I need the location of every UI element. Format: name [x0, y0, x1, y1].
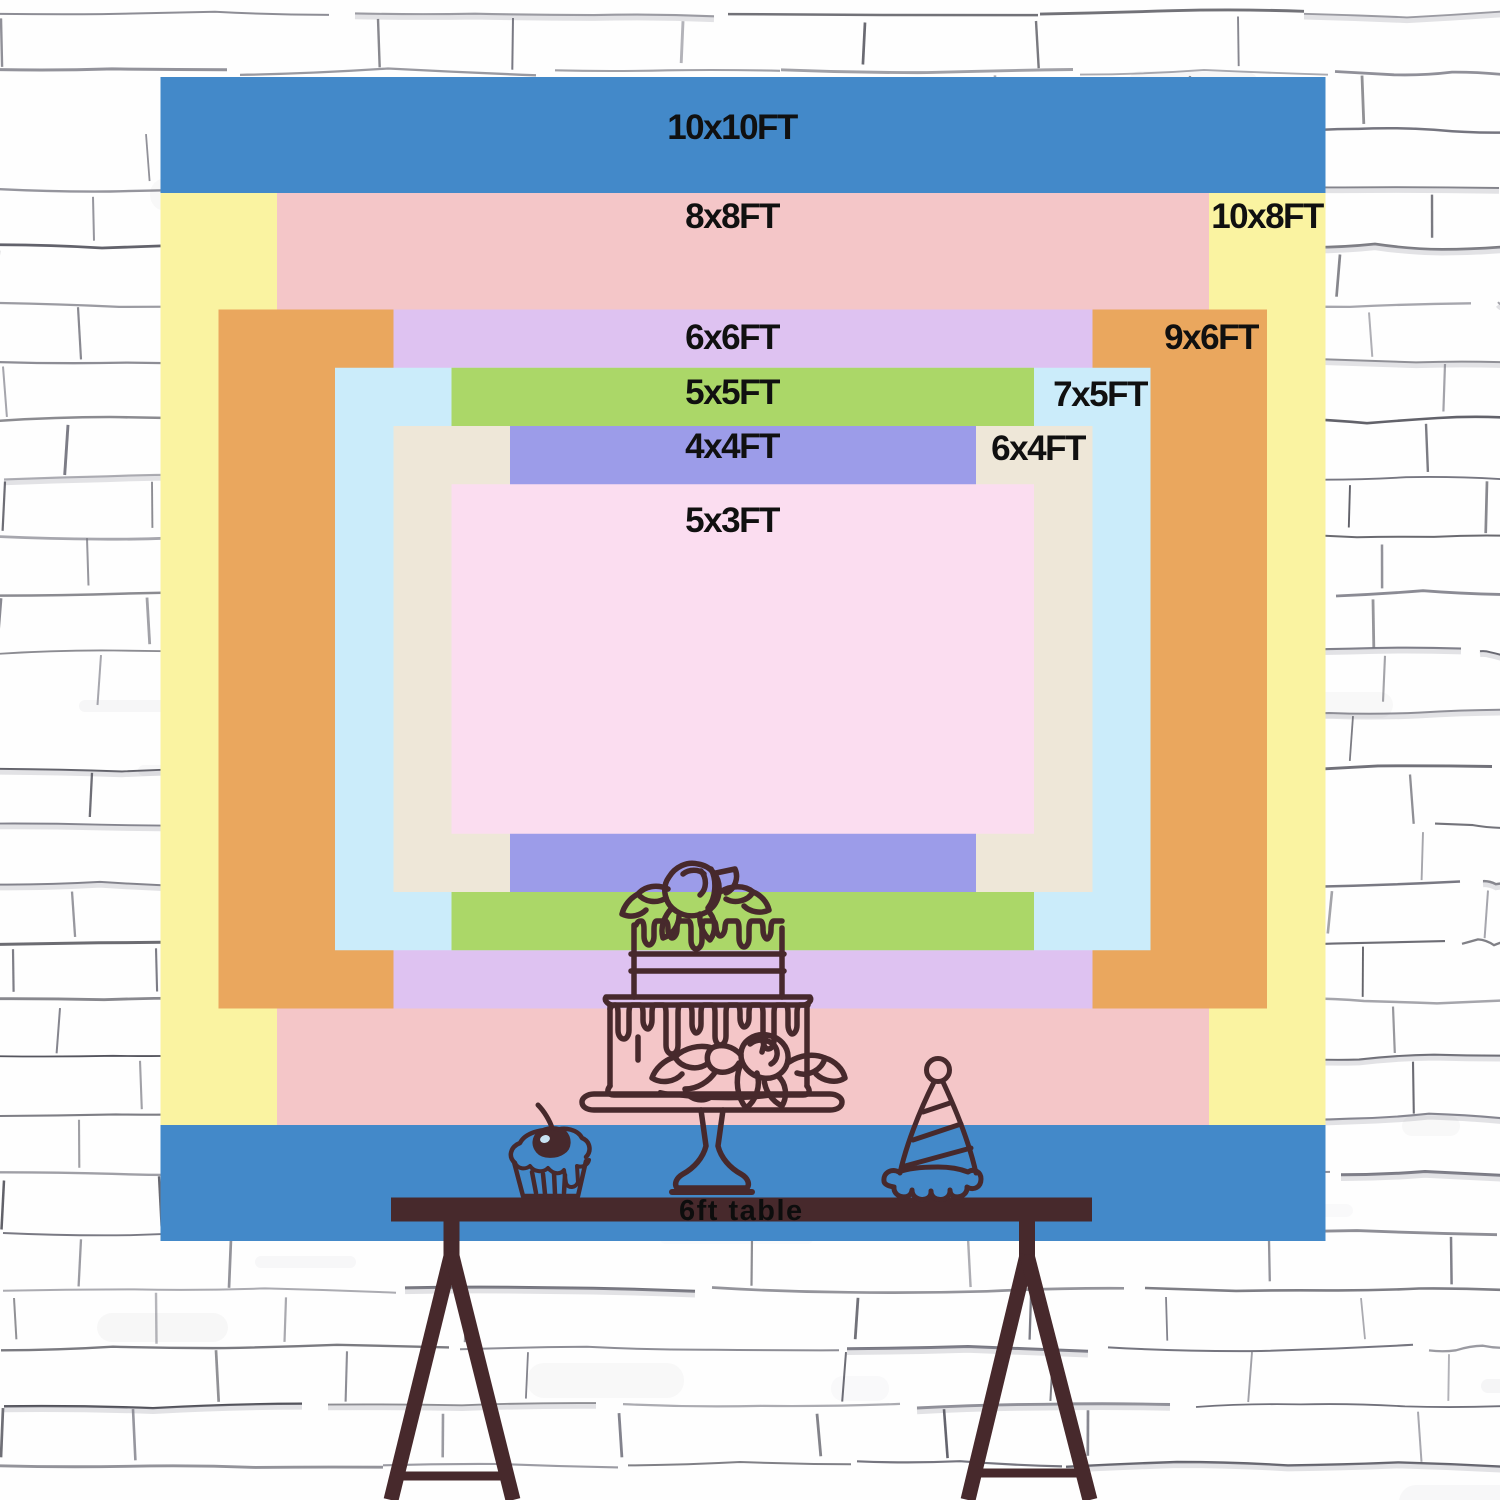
svg-text:6ft table: 6ft table	[679, 1195, 804, 1227]
svg-text:5x5FT: 5x5FT	[685, 373, 780, 412]
svg-text:8x8FT: 8x8FT	[685, 197, 780, 236]
svg-text:6x6FT: 6x6FT	[685, 318, 780, 357]
svg-text:7x5FT: 7x5FT	[1053, 375, 1148, 414]
svg-text:9x6FT: 9x6FT	[1164, 318, 1259, 357]
svg-text:6x4FT: 6x4FT	[991, 429, 1086, 468]
svg-text:10x10FT: 10x10FT	[667, 108, 798, 147]
svg-text:10x8FT: 10x8FT	[1211, 197, 1324, 236]
svg-text:4x4FT: 4x4FT	[685, 427, 780, 466]
svg-text:5x3FT: 5x3FT	[685, 501, 780, 540]
